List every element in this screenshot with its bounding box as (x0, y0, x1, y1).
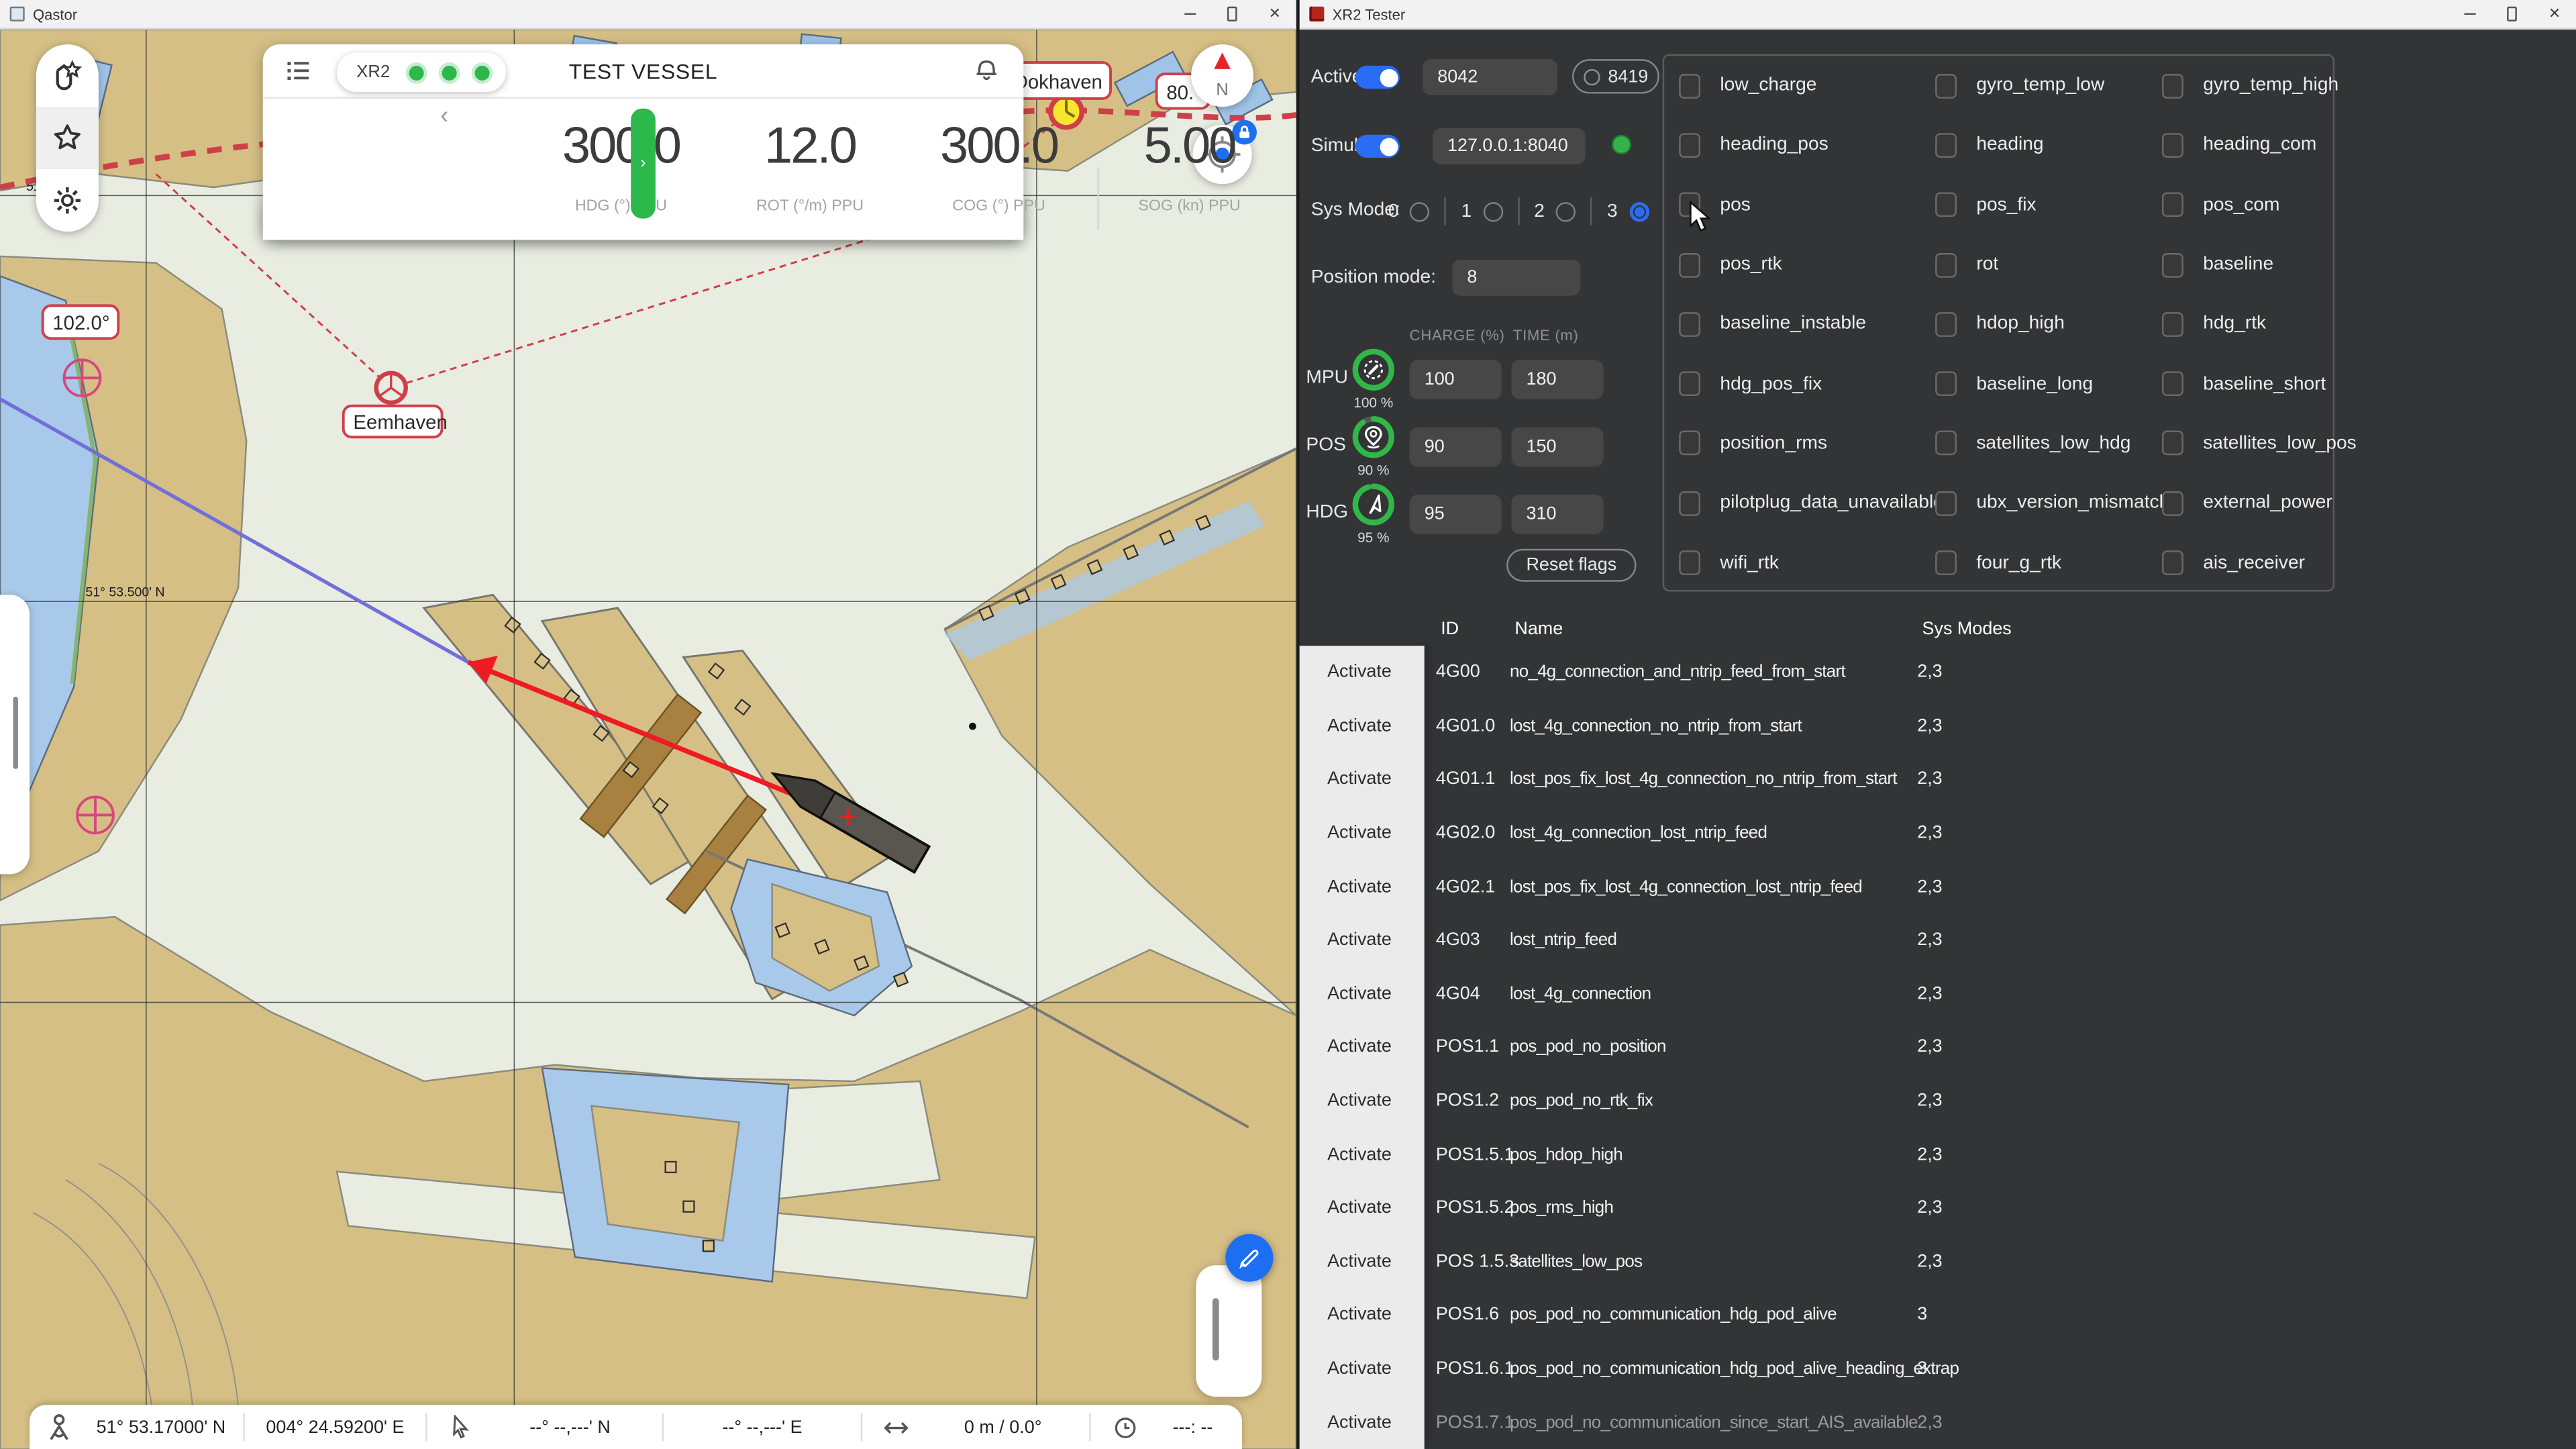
drawer-grip (12, 697, 18, 769)
notifications-bell-icon[interactable] (972, 56, 1000, 92)
flag-item[interactable]: satellites_low_pos (2162, 431, 2357, 456)
metric-sog: 5.00 SOG (kn) PPU (1091, 107, 1288, 215)
hdg-charge-ring (1351, 481, 1397, 528)
flag-item[interactable]: gyro_temp_high (2162, 73, 2357, 98)
flag-label: pos_fix (1976, 195, 2036, 215)
flag-checkbox[interactable] (1935, 491, 1957, 515)
activate-button[interactable]: Activate (1300, 1289, 1425, 1342)
activate-button[interactable]: Activate (1300, 1235, 1425, 1289)
active-port-input[interactable]: 8042 (1423, 59, 1557, 95)
port-radio-icon (1584, 68, 1600, 85)
scenario-id: POS1.5.2 (1436, 1199, 1514, 1218)
xr2-app-icon (1309, 7, 1324, 21)
mpu-time-input[interactable]: 180 (1511, 360, 1603, 399)
flag-item[interactable]: pos (1679, 193, 1935, 217)
source-label: XR2 (356, 62, 390, 82)
flag-item[interactable]: satellites_low_hdg (1935, 431, 2162, 456)
scenario-id: 4G04 (1436, 984, 1480, 1003)
mpu-charge-ring (1351, 347, 1397, 393)
col-header-name: Name (1514, 619, 1563, 639)
scenario-sysmodes: 2,3 (1917, 662, 1942, 682)
qastor-app-icon (10, 7, 25, 21)
metric-hdg: 300.0 HDG (°) PPU (523, 107, 720, 215)
scenario-sysmodes: 2,3 (1917, 1145, 1942, 1164)
scenario-name: satellites_low_pos (1510, 1252, 1642, 1271)
table-row: ActivatePOS1.5.1pos_hdop_high2,3 (1300, 1128, 2576, 1182)
drawer-grip (1213, 1298, 1219, 1360)
flag-item[interactable]: rot (1935, 252, 2162, 277)
metric-rot: 12.0 ROT (°/m) PPU (711, 107, 909, 215)
flag-label: baseline_instable (1720, 314, 1866, 334)
scenario-name: lost_4g_connection_lost_ntrip_feed (1510, 823, 1767, 843)
flag-label: ais_receiver (2203, 553, 2305, 572)
flag-checkbox[interactable] (2162, 312, 2183, 337)
flag-checkbox[interactable] (1679, 431, 1700, 456)
flag-item[interactable]: baseline_instable (1679, 312, 1935, 337)
table-row: ActivatePOS1.5.2pos_rms_high2,3 (1300, 1181, 2576, 1235)
qastor-title: Qastor (33, 6, 77, 22)
navigation-arrow-icon (1367, 495, 1382, 513)
map-label-course: 102.0° (43, 305, 119, 338)
radio-icon (1629, 201, 1649, 221)
activate-button[interactable]: Activate (1300, 646, 1425, 699)
scenario-name: pos_pod_no_communication_hdg_pod_alive (1510, 1305, 1837, 1325)
flag-item[interactable]: hdg_rtk (2162, 312, 2357, 337)
flag-checkbox[interactable] (1679, 73, 1700, 98)
minimize-button[interactable] (2448, 0, 2491, 28)
flag-checkbox[interactable] (1679, 491, 1700, 515)
flag-item[interactable]: heading_pos (1679, 133, 1935, 158)
flag-label: baseline_long (1976, 374, 2093, 393)
flag-item[interactable]: low_charge (1679, 73, 1935, 98)
activate-button[interactable]: Activate (1300, 699, 1425, 753)
activate-button[interactable]: Activate (1300, 753, 1425, 807)
maximize-button[interactable] (1210, 0, 1253, 28)
flag-checkbox[interactable] (1679, 252, 1700, 277)
flag-item[interactable]: ais_receiver (2162, 550, 2357, 575)
xr2-title: XR2 Tester (1333, 6, 1406, 22)
flag-checkbox[interactable] (1679, 550, 1700, 575)
nautical-chart[interactable]: 51° 53.500' N 51° (0, 30, 1296, 1449)
time-header: TIME (m) (1513, 327, 1579, 343)
scenario-name: pos_pod_no_position (1510, 1038, 1666, 1057)
flag-item[interactable]: four_g_rtk (1935, 550, 2162, 575)
svg-text:Eemhaven: Eemhaven (353, 411, 447, 434)
scenario-id: 4G01.0 (1436, 716, 1495, 736)
scenario-id: 4G00 (1436, 662, 1480, 682)
flag-label: heading_pos (1720, 136, 1828, 155)
scenario-sysmodes: 2,3 (1917, 1252, 1942, 1271)
table-row: Activate4G02.1lost_pos_fix_lost_4g_conne… (1300, 860, 2576, 913)
svg-text:80.: 80. (1166, 82, 1194, 104)
flag-label: baseline (2203, 255, 2273, 274)
scenario-sysmodes: 2,3 (1917, 770, 1942, 789)
mpu-percent: 100 % (1337, 395, 1410, 411)
svg-text:102.0°: 102.0° (52, 312, 109, 334)
scenario-id: POS1.7.1 (1436, 1413, 1514, 1432)
gear-icon (51, 184, 84, 217)
flag-checkbox[interactable] (1935, 372, 1957, 397)
scenario-sysmodes: 2,3 (1917, 1091, 1942, 1111)
scenario-name: pos_hdop_high (1510, 1145, 1622, 1164)
flag-item[interactable]: heading (1935, 133, 2162, 158)
sysmode-option-2[interactable]: 2 (1534, 201, 1576, 221)
activate-button[interactable]: Activate (1300, 1021, 1425, 1075)
device-label-pos: POS (1306, 436, 1345, 455)
flag-label: hdg_rtk (2203, 314, 2266, 334)
flag-item[interactable]: hdop_high (1935, 312, 2162, 337)
activate-button[interactable]: Activate (1300, 913, 1425, 967)
own-longitude: 004° 24.59200' E (245, 1405, 425, 1449)
scenario-sysmodes: 2,3 (1917, 984, 1942, 1003)
radio-icon (1556, 201, 1576, 221)
settings-button[interactable] (36, 169, 99, 232)
eta-clock-icon (1114, 1415, 1137, 1438)
flag-label: ubx_version_mismatch (1976, 493, 2169, 513)
hdg-time-input[interactable]: 310 (1511, 495, 1603, 534)
table-row: Activate4G00no_4g_connection_and_ntrip_f… (1300, 646, 2576, 699)
activate-button[interactable]: Activate (1300, 807, 1425, 860)
routes-button[interactable] (36, 44, 99, 107)
qastor-titlebar[interactable]: Qastor ✕ (0, 0, 1296, 30)
qastor-window: Qastor ✕ (0, 0, 1296, 1449)
cursor-pointer-icon (450, 1415, 472, 1440)
flag-label: low_charge (1720, 76, 1816, 95)
minimize-icon (1184, 13, 1195, 15)
scenario-name: lost_ntrip_feed (1510, 930, 1616, 950)
activate-button[interactable]: Activate (1300, 1181, 1425, 1235)
scenario-sysmodes: 2,3 (1917, 823, 1942, 843)
flag-item[interactable]: pos_com (2162, 193, 2357, 217)
scenario-id: POS1.6.1 (1436, 1359, 1514, 1379)
activate-button[interactable]: Activate (1300, 1342, 1425, 1396)
scenario-id: POS1.1 (1436, 1038, 1499, 1057)
scenario-name: pos_pod_no_communication_since_start_AIS… (1510, 1413, 1918, 1432)
flag-item[interactable]: hdg_pos_fix (1679, 372, 1935, 397)
minimize-button[interactable] (1168, 0, 1211, 28)
scenario-sysmodes: 2,3 (1917, 716, 1942, 736)
flag-label: pos (1720, 195, 1750, 215)
activate-button[interactable]: Activate (1300, 1075, 1425, 1128)
flag-label: external_power (2203, 493, 2332, 513)
col-header-id: ID (1441, 619, 1459, 639)
flag-label: hdg_pos_fix (1720, 374, 1822, 393)
pos-time-input[interactable]: 150 (1511, 428, 1603, 467)
scenario-id: POS1.6 (1436, 1305, 1499, 1325)
status-dot-green (407, 62, 428, 83)
metric-cog: 300.0 COG (°) PPU (900, 107, 1098, 215)
scenario-sysmodes: 2,3 (1917, 1413, 1942, 1432)
connection-status-dot (1612, 135, 1631, 154)
map-label-eemhaven: Eemhaven (344, 406, 448, 438)
flag-label: rot (1976, 255, 1998, 274)
range-bearing: 0 m / 0.0° (917, 1405, 1089, 1449)
device-label-hdg: HDG (1306, 503, 1348, 522)
close-button[interactable]: ✕ (2533, 0, 2576, 28)
desktop: Qastor ✕ (0, 0, 2576, 1449)
flag-label: pilotplug_data_unavailable (1720, 493, 1943, 513)
flag-checkbox[interactable] (2162, 133, 2183, 158)
flag-item[interactable]: baseline (2162, 252, 2357, 277)
status-dot-green (472, 62, 494, 83)
maximize-icon (1227, 7, 1237, 21)
flag-checkbox[interactable] (1935, 193, 1957, 217)
flag-checkbox[interactable] (1935, 252, 1957, 277)
flag-item[interactable]: baseline_short (2162, 372, 2357, 397)
flag-item[interactable]: heading_com (2162, 133, 2357, 158)
reset-flags-button[interactable]: Reset flags (1506, 549, 1636, 582)
table-row: ActivatePOS1.2pos_pod_no_rtk_fix2,3 (1300, 1075, 2576, 1128)
scenario-name: lost_pos_fix_lost_4g_connection_no_ntrip… (1510, 770, 1897, 789)
table-row: ActivatePOS1.1pos_pod_no_position2,3 (1300, 1021, 2576, 1075)
flag-checkbox[interactable] (1935, 133, 1957, 158)
flag-label: pos_rtk (1720, 255, 1782, 274)
pencil-icon (1237, 1246, 1262, 1270)
scenario-id: POS1.5.1 (1436, 1145, 1514, 1164)
table-row: Activate4G01.1lost_pos_fix_lost_4g_conne… (1300, 753, 2576, 807)
pos-charge-ring (1351, 414, 1397, 460)
vessel-panel-header: TEST VESSEL XR2 (263, 44, 1024, 99)
radio-icon (1483, 201, 1502, 221)
scenario-sysmodes: 3 (1917, 1305, 1927, 1325)
flag-checkbox[interactable] (2162, 193, 2183, 217)
flag-label: satellites_low_pos (2203, 434, 2357, 453)
minimize-icon (2463, 13, 2475, 15)
position-mode-label: Position mode: (1311, 268, 1436, 287)
flag-checkbox[interactable] (1935, 312, 1957, 337)
flag-checkbox[interactable] (1935, 550, 1957, 575)
flag-checkbox[interactable] (1679, 372, 1700, 397)
pos-percent: 90 % (1337, 462, 1410, 478)
flag-label: heading (1976, 136, 2043, 155)
eta-value: ---: -- (1143, 1405, 1242, 1449)
flag-label: wifi_rtk (1720, 553, 1779, 572)
close-icon: ✕ (1269, 7, 1281, 21)
sysmode-group: 0 1 2 3 (1388, 197, 1649, 226)
table-row: ActivatePOS 1.5.3satellites_low_pos2,3 (1300, 1235, 2576, 1289)
map-pin-icon (1366, 428, 1382, 448)
own-latitude: 51° 53.17000' N (79, 1405, 244, 1449)
flag-item[interactable]: baseline_long (1935, 372, 2162, 397)
right-drawer-handle[interactable] (1196, 1265, 1261, 1397)
cursor-latitude: --° --,---' N (478, 1405, 662, 1449)
flag-checkbox[interactable] (2162, 550, 2183, 575)
scenario-id: 4G02.0 (1436, 823, 1495, 843)
simulate-toggle[interactable] (1355, 135, 1400, 158)
activate-button[interactable]: Activate (1300, 967, 1425, 1021)
flag-item[interactable]: external_power (2162, 491, 2357, 515)
xr2-titlebar[interactable]: XR2 Tester ✕ (1300, 0, 2576, 30)
simulate-address-input[interactable]: 127.0.0.1:8040 (1433, 128, 1586, 164)
scenario-sysmodes: 2,3 (1917, 1038, 1942, 1057)
sysmode-option-3[interactable]: 3 (1607, 201, 1649, 221)
scenario-sysmodes: 2,3 (1917, 930, 1942, 950)
flag-checkbox[interactable] (2162, 491, 2183, 515)
scenario-id: 4G03 (1436, 930, 1480, 950)
graticule-lat-label: 51° 53.500' N (85, 585, 164, 600)
compass-button[interactable]: N (1191, 44, 1253, 107)
xr2-tester-window: XR2 Tester ✕ Active 8042 8419 Simulate 1… (1300, 0, 2576, 1449)
mpu-charge-input[interactable]: 100 (1410, 360, 1502, 399)
range-bearing-icon (882, 1417, 911, 1437)
flag-checkbox[interactable] (1935, 73, 1957, 98)
radio-icon (1410, 201, 1430, 221)
flag-checkbox[interactable] (1679, 312, 1700, 337)
status-bar: 51° 53.17000' N 004° 24.59200' E --° --,… (30, 1405, 1242, 1449)
flag-checkbox[interactable] (1679, 133, 1700, 158)
flag-checkbox[interactable] (2162, 73, 2183, 98)
metric-divider (1097, 168, 1098, 230)
flag-label: pos_com (2203, 195, 2279, 215)
flag-label: position_rms (1720, 434, 1827, 453)
secondary-port-button[interactable]: 8419 (1572, 59, 1659, 93)
table-row: Activate4G01.0lost_4g_connection_no_ntri… (1300, 699, 2576, 753)
table-row: ActivatePOS1.7.1pos_pod_no_communication… (1300, 1396, 2576, 1449)
flag-checkbox[interactable] (2162, 372, 2183, 397)
hdg-percent: 95 % (1337, 529, 1410, 545)
flag-item[interactable]: pos_fix (1935, 193, 2162, 217)
activate-button[interactable]: Activate (1300, 1128, 1425, 1182)
flag-item[interactable]: gyro_temp_low (1935, 73, 2162, 98)
close-icon: ✕ (2548, 7, 2561, 21)
scenario-rows: Activate4G00no_4g_connection_and_ntrip_f… (1300, 646, 2576, 1449)
flag-item[interactable]: position_rms (1679, 431, 1935, 456)
metrics-prev-button[interactable]: ‹ (440, 102, 448, 130)
flag-checkbox[interactable] (1935, 431, 1957, 456)
flag-label: satellites_low_hdg (1976, 434, 2130, 453)
flag-item[interactable]: pilotplug_data_unavailable (1679, 491, 1935, 515)
qastor-logo-icon (46, 1412, 72, 1442)
activate-button[interactable]: Activate (1300, 1396, 1425, 1449)
hdg-charge-input[interactable]: 95 (1410, 495, 1502, 534)
scenario-sysmodes: 2,3 (1917, 1199, 1942, 1218)
scenario-name: lost_pos_fix_lost_4g_connection_lost_ntr… (1510, 877, 1862, 897)
route-star-icon (51, 59, 84, 92)
position-mode-input[interactable]: 8 (1452, 260, 1580, 296)
svg-text:Dokhaven: Dokhaven (1014, 71, 1102, 93)
flag-label: four_g_rtk (1976, 553, 2061, 572)
flag-label: hdop_high (1976, 314, 2065, 334)
pos-charge-input[interactable]: 90 (1410, 428, 1502, 467)
flag-label: baseline_short (2203, 374, 2326, 393)
scenario-sysmodes: 3 (1917, 1359, 1927, 1379)
col-header-sysmodes: Sys Modes (1922, 619, 2012, 639)
scenario-id: POS 1.5.3 (1436, 1252, 1519, 1271)
waypoint-symbol (376, 373, 406, 403)
table-row: Activate4G04lost_4g_connection2,3 (1300, 967, 2576, 1021)
scenario-name: no_4g_connection_and_ntrip_feed_from_sta… (1510, 662, 1845, 682)
activate-button[interactable]: Activate (1300, 860, 1425, 913)
flag-label: heading_com (2203, 136, 2316, 155)
scenario-name: pos_pod_no_rtk_fix (1510, 1091, 1653, 1111)
mouse-cursor (1689, 201, 1715, 234)
flag-checkbox[interactable] (2162, 431, 2183, 456)
star-icon (51, 121, 84, 154)
maximize-icon (2507, 7, 2517, 21)
scenario-sysmodes: 2,3 (1917, 877, 1942, 897)
secondary-port-label: 8419 (1608, 66, 1648, 86)
flag-item[interactable]: pos_rtk (1679, 252, 1935, 277)
flag-label: gyro_temp_high (2203, 76, 2338, 95)
left-drawer-handle[interactable] (0, 595, 30, 874)
flag-checkbox[interactable] (2162, 252, 2183, 277)
table-row: ActivatePOS1.6.1pos_pod_no_communication… (1300, 1342, 2576, 1396)
maximize-button[interactable] (2491, 0, 2534, 28)
source-selector[interactable]: XR2 (337, 52, 507, 92)
flag-item[interactable]: wifi_rtk (1679, 550, 1935, 575)
table-row: Activate4G03lost_ntrip_feed2,3 (1300, 913, 2576, 967)
scenario-name: pos_pod_no_communication_hdg_pod_alive_h… (1510, 1359, 1959, 1379)
status-dot-green (440, 62, 461, 83)
metrics-next-button[interactable]: › (631, 109, 656, 219)
flag-item[interactable]: ubx_version_mismatch (1935, 491, 2162, 515)
active-toggle[interactable] (1355, 66, 1400, 89)
map-tools (36, 44, 99, 232)
sysmode-label: Sys Mode: (1311, 201, 1400, 220)
scenario-name: lost_4g_connection_no_ntrip_from_start (1510, 716, 1802, 736)
favorites-button[interactable] (36, 107, 99, 169)
scenario-id: 4G02.1 (1436, 877, 1495, 897)
flags-panel: low_chargegyro_temp_lowgyro_temp_highhea… (1663, 54, 2334, 592)
scenario-table: ID Name Sys Modes Activate4G00no_4g_conn… (1300, 611, 2576, 1449)
scenario-id: 4G01.1 (1436, 770, 1495, 789)
sysmode-option-0[interactable]: 0 (1388, 201, 1430, 221)
charge-header: CHARGE (%) (1410, 327, 1505, 343)
north-label: N (1216, 81, 1229, 100)
device-label-mpu: MPU (1306, 368, 1348, 387)
table-row: Activate4G02.0lost_4g_connection_lost_nt… (1300, 807, 2576, 860)
cursor-longitude: --° --,---' E (664, 1405, 861, 1449)
edit-route-button[interactable] (1225, 1234, 1273, 1282)
scenario-name: pos_rms_high (1510, 1199, 1613, 1218)
scenario-id: POS1.2 (1436, 1091, 1499, 1111)
scenario-name: lost_4g_connection (1510, 984, 1651, 1003)
flags-grid: low_chargegyro_temp_lowgyro_temp_highhea… (1679, 56, 2332, 590)
table-row: ActivatePOS1.6pos_pod_no_communication_h… (1300, 1289, 2576, 1342)
close-button[interactable]: ✕ (1253, 0, 1296, 28)
sysmode-option-1[interactable]: 1 (1461, 201, 1503, 221)
flag-label: gyro_temp_low (1976, 76, 2104, 95)
